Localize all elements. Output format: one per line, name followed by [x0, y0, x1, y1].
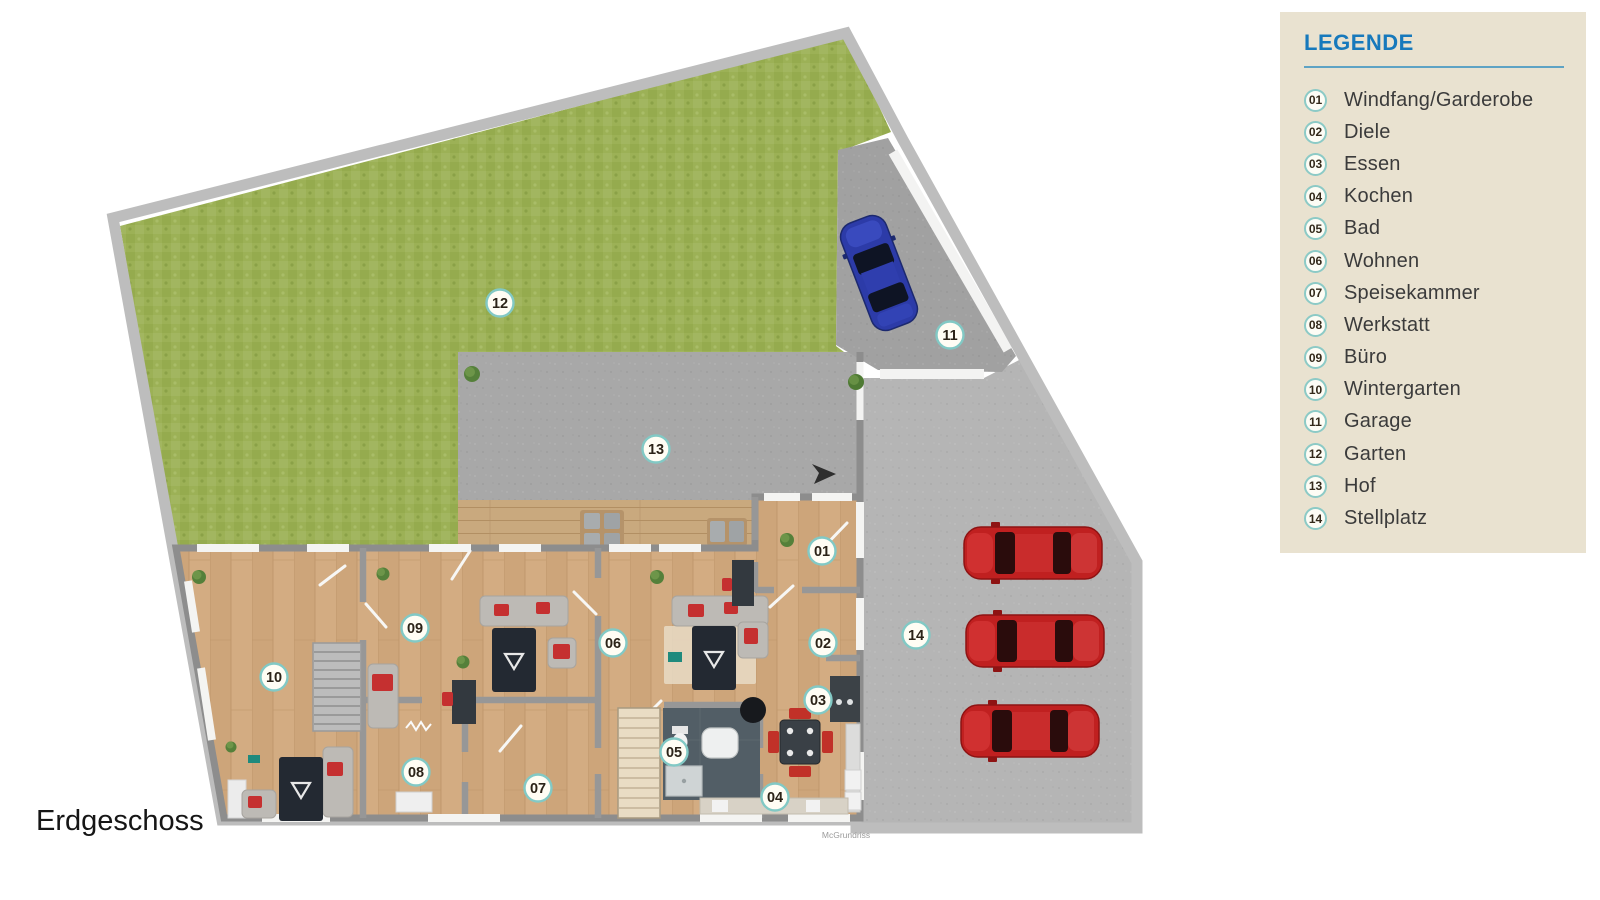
room-badge-10: 10: [261, 664, 288, 691]
legend-item-number: 07: [1304, 282, 1327, 305]
legend-item-label: Werkstatt: [1344, 314, 1430, 337]
room-badge-06: 06: [600, 630, 627, 657]
legend-item-07: 07 Speisekammer: [1304, 277, 1564, 309]
round-table: [740, 697, 766, 723]
svg-text:03: 03: [810, 693, 826, 709]
legend-item-number: 09: [1304, 346, 1327, 369]
legend-item-01: 01 Windfang/Garderobe: [1304, 84, 1564, 116]
room-badge-04: 04: [762, 784, 789, 811]
room-badge-08: 08: [403, 759, 430, 786]
legend-item-label: Bad: [1344, 217, 1380, 240]
room-badge-03: 03: [805, 687, 832, 714]
legend-item-label: Windfang/Garderobe: [1344, 89, 1533, 112]
legend-list: 01 Windfang/Garderobe 02 Diele 03 Essen …: [1304, 84, 1564, 535]
legend-item-label: Essen: [1344, 153, 1401, 176]
legend-item-number: 13: [1304, 475, 1327, 498]
svg-text:13: 13: [648, 442, 664, 458]
legend-item-label: Wohnen: [1344, 250, 1419, 273]
svg-text:04: 04: [767, 790, 783, 806]
stairs-gray: [313, 643, 361, 731]
desk: [732, 560, 754, 606]
workshop-shelf: [396, 792, 432, 812]
legend-item-06: 06 Wohnen: [1304, 245, 1564, 277]
svg-text:11: 11: [942, 328, 957, 344]
courtyard-area: [458, 352, 860, 500]
legend-item-number: 02: [1304, 121, 1327, 144]
legend-item-label: Diele: [1344, 121, 1391, 144]
legend-item-number: 06: [1304, 250, 1327, 273]
legend-item-label: Kochen: [1344, 185, 1413, 208]
legend-item-number: 05: [1304, 217, 1327, 240]
legend-panel: LEGENDE 01 Windfang/Garderobe 02 Diele 0…: [1280, 12, 1586, 553]
legend-item-label: Garage: [1344, 410, 1412, 433]
stairs-main: [618, 708, 660, 818]
red-car-3: [961, 700, 1099, 762]
legend-item-label: Speisekammer: [1344, 282, 1480, 305]
desk: [452, 680, 476, 724]
room-badge-09: 09: [402, 615, 429, 642]
legend-title: LEGENDE: [1304, 30, 1564, 56]
svg-text:01: 01: [814, 544, 830, 560]
legend-rule: [1304, 66, 1564, 68]
floor-label: Erdgeschoss: [36, 804, 204, 838]
legend-item-number: 12: [1304, 443, 1327, 466]
page: McGrundriss 0102030405060708091011121314…: [0, 0, 1600, 900]
room-badge-12: 12: [487, 290, 514, 317]
svg-text:02: 02: [815, 636, 831, 652]
svg-text:06: 06: [605, 636, 621, 652]
svg-text:08: 08: [408, 765, 424, 781]
red-car-2: [966, 610, 1104, 672]
legend-item-12: 12 Garten: [1304, 438, 1564, 470]
room-badge-13: 13: [643, 436, 670, 463]
legend-item-05: 05 Bad: [1304, 213, 1564, 245]
legend-item-number: 10: [1304, 378, 1327, 401]
legend-item-label: Garten: [1344, 443, 1406, 466]
legend-item-04: 04 Kochen: [1304, 181, 1564, 213]
legend-item-11: 11 Garage: [1304, 406, 1564, 438]
red-car-1: [964, 522, 1102, 584]
legend-item-13: 13 Hof: [1304, 470, 1564, 502]
legend-item-label: Büro: [1344, 346, 1387, 369]
svg-text:05: 05: [666, 745, 682, 761]
legend-item-number: 03: [1304, 153, 1327, 176]
room-badge-14: 14: [903, 622, 930, 649]
room-badge-01: 01: [809, 538, 836, 565]
room-badge-07: 07: [525, 775, 552, 802]
legend-item-08: 08 Werkstatt: [1304, 309, 1564, 341]
svg-text:07: 07: [530, 781, 546, 797]
svg-text:14: 14: [908, 628, 924, 644]
svg-text:12: 12: [492, 296, 508, 312]
legend-item-14: 14 Stellplatz: [1304, 502, 1564, 534]
room-badge-05: 05: [661, 739, 688, 766]
toilet-tank: [672, 726, 688, 734]
legend-item-10: 10 Wintergarten: [1304, 374, 1564, 406]
legend-item-number: 04: [1304, 185, 1327, 208]
legend-item-number: 08: [1304, 314, 1327, 337]
bathtub: [702, 728, 738, 758]
legend-item-label: Wintergarten: [1344, 378, 1461, 401]
legend-item-number: 11: [1304, 410, 1327, 433]
legend-item-09: 09 Büro: [1304, 342, 1564, 374]
watermark: McGrundriss: [822, 830, 870, 840]
room-badge-11: 11: [937, 322, 964, 349]
legend-item-label: Stellplatz: [1344, 507, 1427, 530]
legend-item-03: 03 Essen: [1304, 148, 1564, 180]
legend-item-number: 01: [1304, 89, 1327, 112]
legend-item-02: 02 Diele: [1304, 116, 1564, 148]
legend-item-number: 14: [1304, 507, 1327, 530]
svg-text:09: 09: [407, 621, 423, 637]
room-badge-02: 02: [810, 630, 837, 657]
svg-text:10: 10: [266, 670, 282, 686]
stove-block: [830, 676, 860, 722]
legend-item-label: Hof: [1344, 475, 1376, 498]
